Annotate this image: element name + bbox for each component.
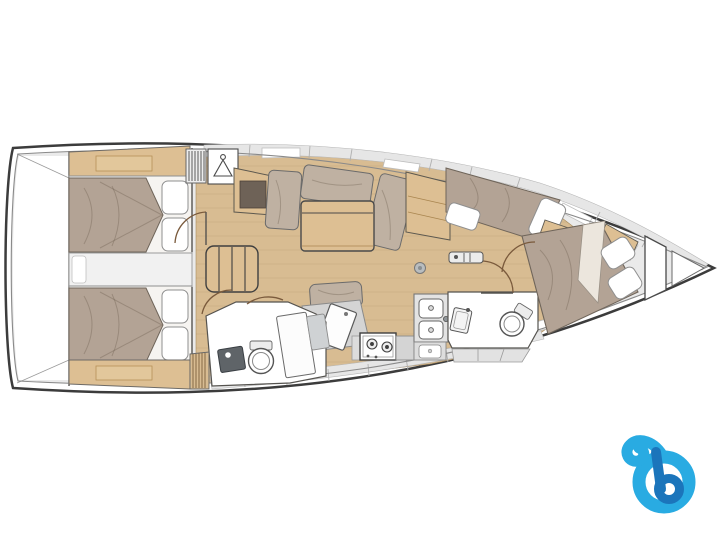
shelf-inset [96, 366, 152, 380]
boataround-logo [627, 441, 689, 507]
shelf-inset [96, 156, 152, 171]
pillow [162, 327, 188, 360]
engine-box [69, 253, 192, 286]
slatted-locker [190, 352, 209, 389]
pillow [162, 181, 188, 214]
aft-cabin-starboard [69, 286, 192, 389]
aft-cabin-port [69, 146, 192, 254]
sliding-door [449, 252, 483, 263]
stern-platform [13, 151, 69, 386]
double-bed-mattress [69, 178, 163, 252]
engine-compartment [69, 253, 192, 286]
fridge [396, 336, 414, 360]
engine-box-inset [72, 256, 86, 283]
vanity-sink [217, 346, 245, 373]
sideboard [406, 172, 450, 240]
double-bed-mattress [69, 288, 163, 362]
cabinet-recess [240, 181, 266, 208]
floor-plan-svg [0, 0, 720, 540]
anchor-locker [645, 236, 666, 300]
pillow [162, 290, 188, 323]
yacht-floorplan-image [0, 0, 720, 540]
settee-cushion [265, 170, 302, 230]
faucet [466, 308, 470, 312]
aft-head [206, 302, 330, 386]
head-lockers [452, 349, 530, 362]
salon-table [301, 201, 374, 251]
forward-head [448, 292, 538, 362]
transom-area [13, 156, 69, 380]
logo-b-bowl [659, 479, 680, 500]
